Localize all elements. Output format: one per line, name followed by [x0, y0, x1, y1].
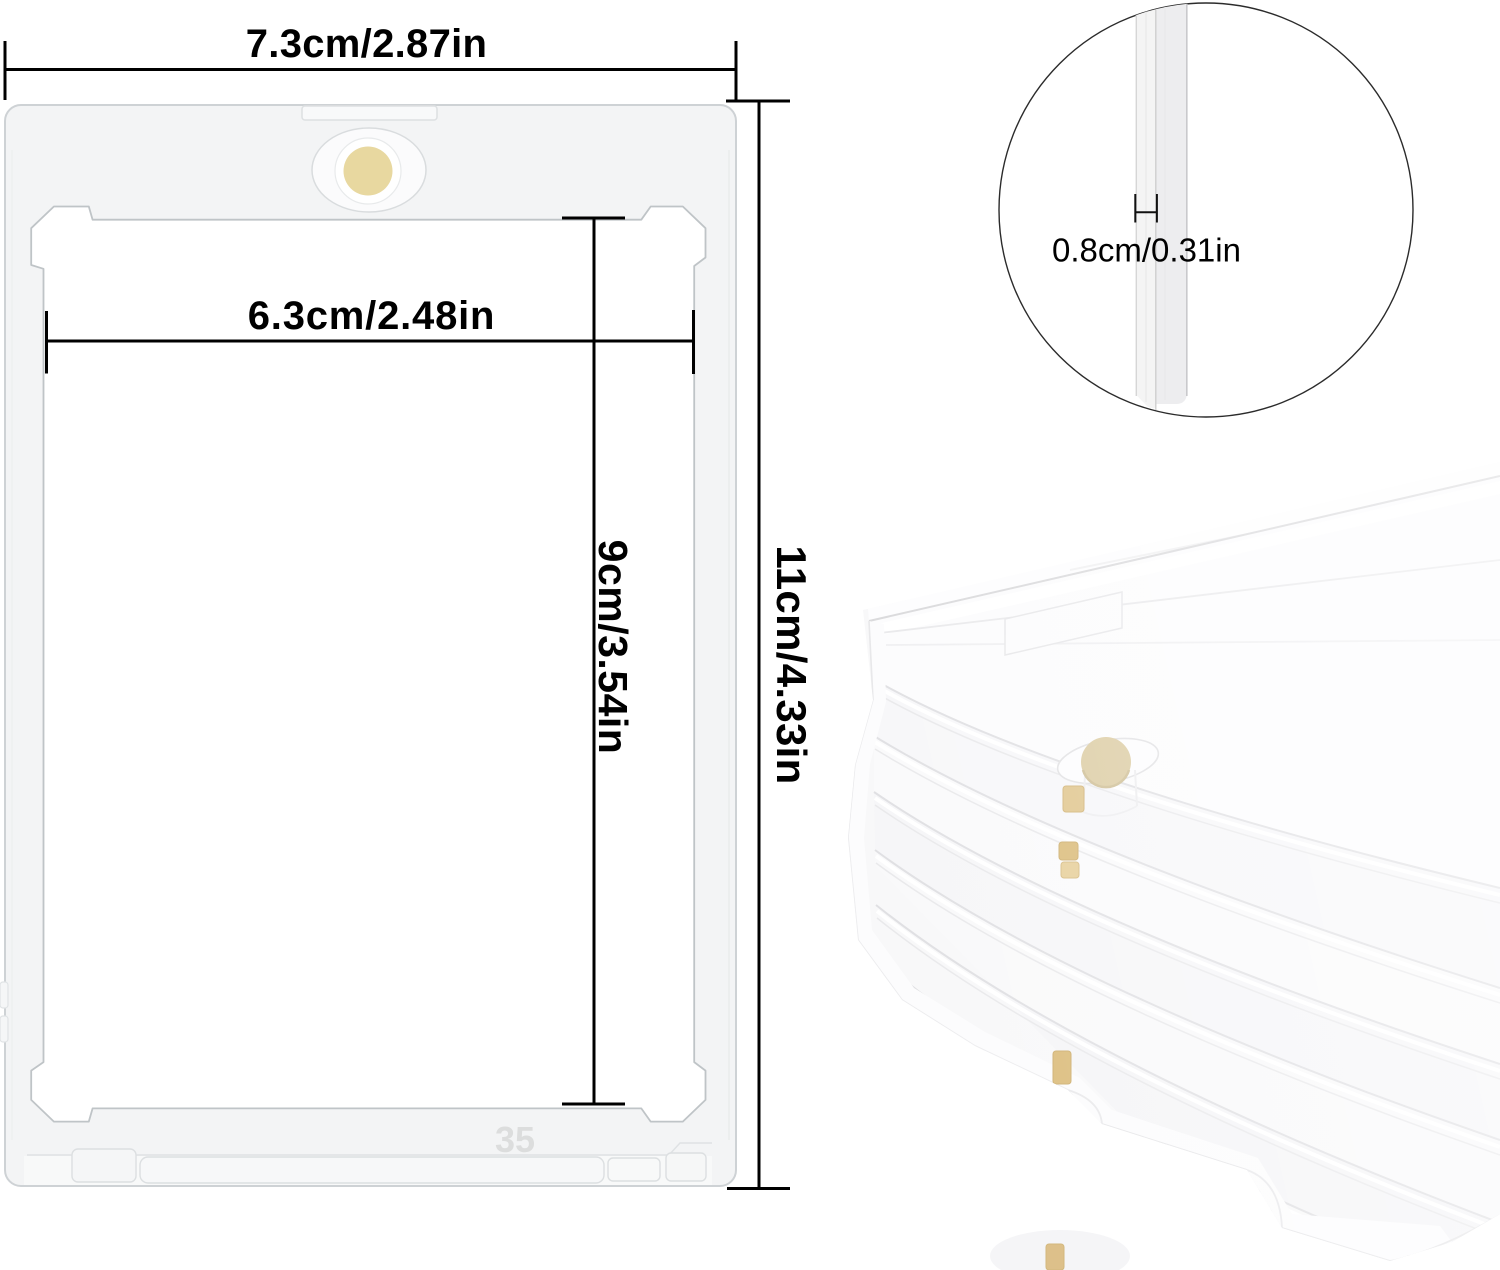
- svg-text:6.3cm/2.48in: 6.3cm/2.48in: [248, 294, 496, 338]
- svg-text:11cm/4.33in: 11cm/4.33in: [768, 545, 815, 784]
- svg-text:7.3cm/2.87in: 7.3cm/2.87in: [246, 22, 488, 66]
- svg-text:0.8cm/0.31in: 0.8cm/0.31in: [1052, 232, 1241, 269]
- svg-text:9cm/3.54in: 9cm/3.54in: [590, 540, 636, 755]
- svg-text:35: 35: [495, 1119, 535, 1160]
